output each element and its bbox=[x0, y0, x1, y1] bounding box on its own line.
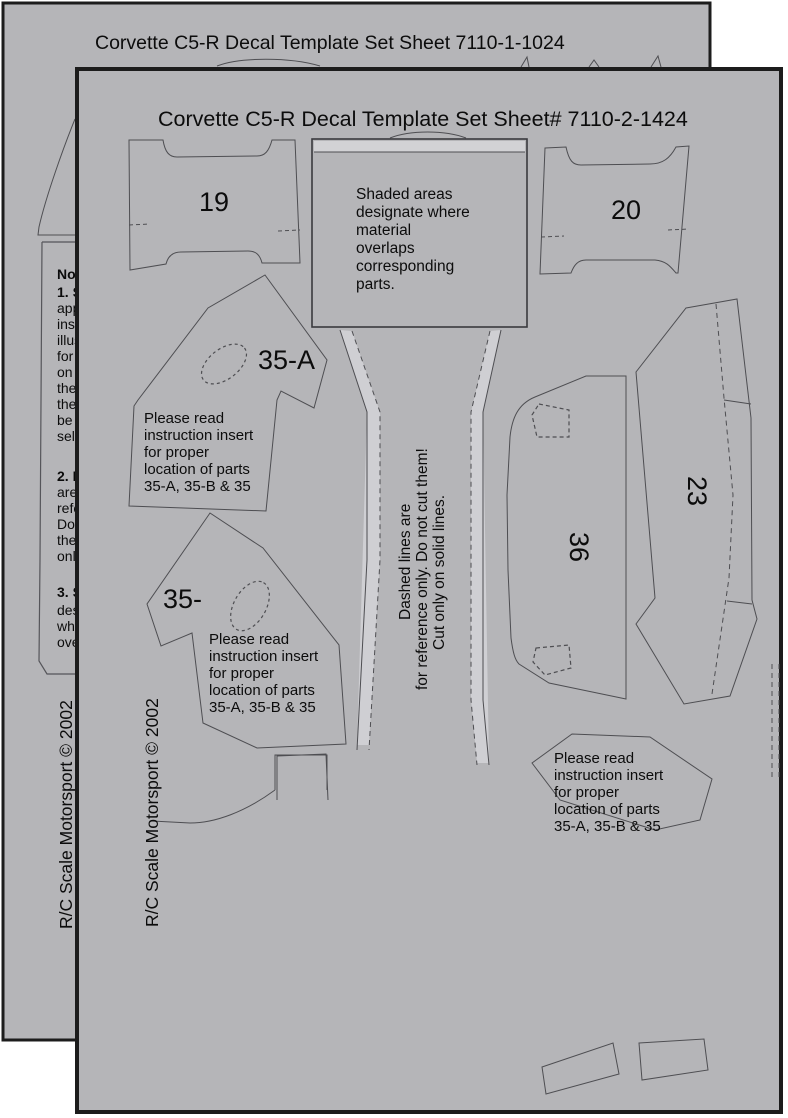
svg-text:for reference only. Do not cut: for reference only. Do not cut them! bbox=[414, 448, 431, 690]
svg-text:Corvette C5-R Decal Template S: Corvette C5-R Decal Template Set Sheet 7… bbox=[95, 32, 565, 54]
svg-text:Corvette C5-R Decal Template S: Corvette C5-R Decal Template Set Sheet# … bbox=[158, 107, 688, 131]
svg-text:20: 20 bbox=[611, 195, 641, 225]
svg-text:Cut only on solid lines.: Cut only on solid lines. bbox=[431, 495, 448, 650]
svg-text:Dashed lines are: Dashed lines are bbox=[397, 504, 414, 620]
svg-text:R/C Scale Motorsport © 2002: R/C Scale Motorsport © 2002 bbox=[142, 698, 162, 927]
svg-text:36: 36 bbox=[564, 532, 594, 562]
svg-text:35-A: 35-A bbox=[258, 345, 315, 375]
svg-text:23: 23 bbox=[682, 476, 712, 506]
svg-text:19: 19 bbox=[199, 187, 229, 217]
svg-text:35-: 35- bbox=[163, 584, 202, 614]
svg-text:R/C Scale Motorsport © 2002: R/C Scale Motorsport © 2002 bbox=[56, 700, 76, 929]
